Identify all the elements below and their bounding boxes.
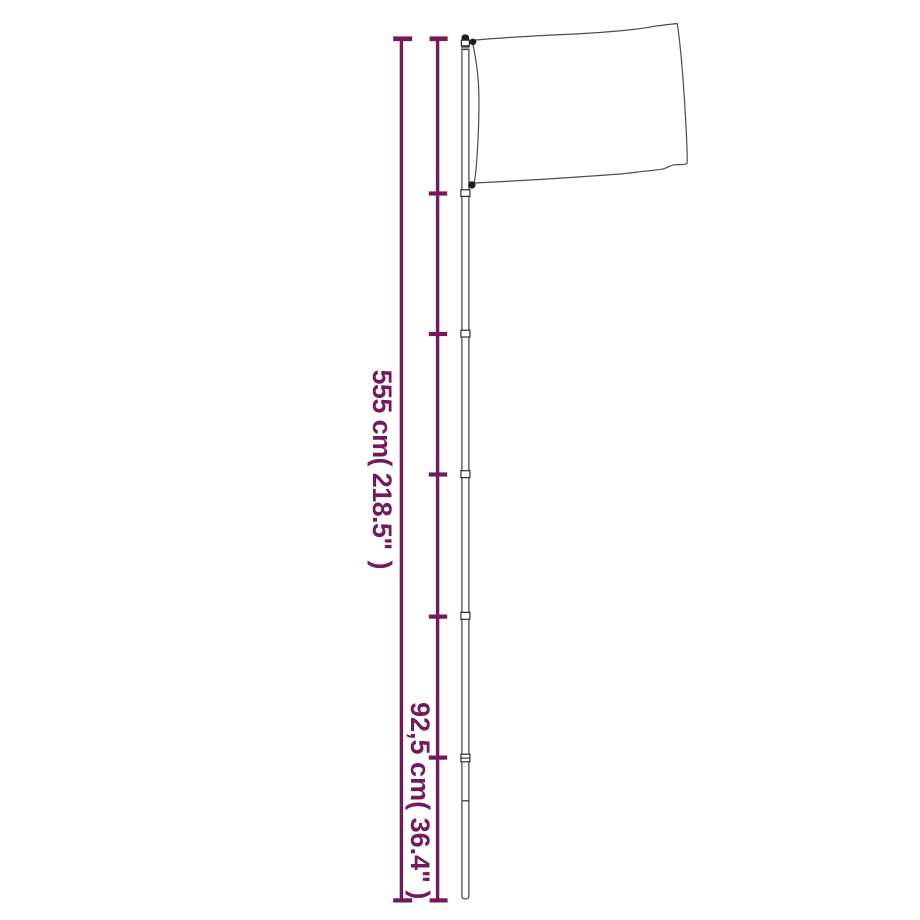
svg-text:555 cm( 218.5" ): 555 cm( 218.5" ) — [367, 370, 397, 569]
svg-text:92,5 cm( 36.4" ): 92,5 cm( 36.4" ) — [405, 702, 435, 899]
